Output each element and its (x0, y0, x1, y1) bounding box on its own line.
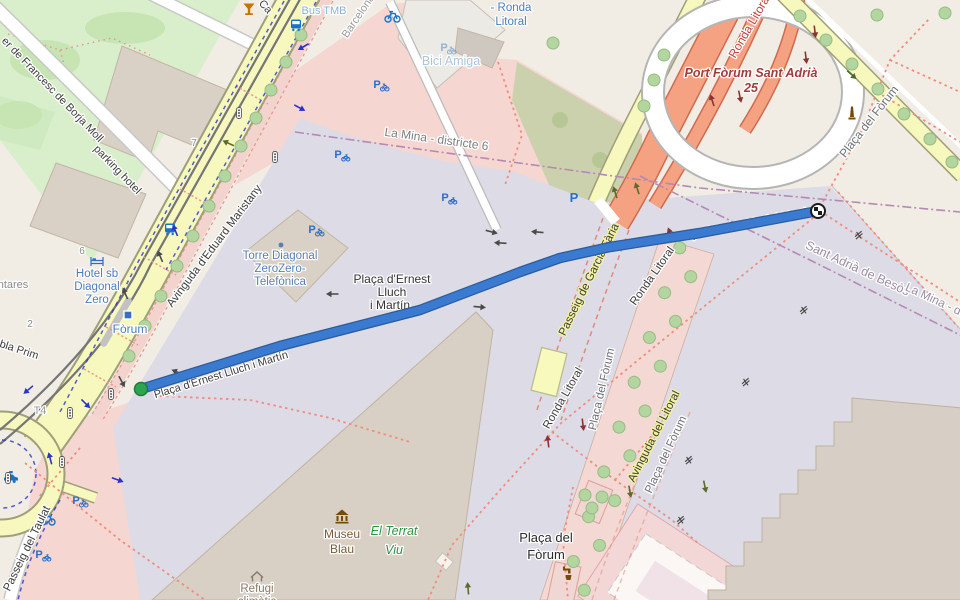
tree-icon (598, 466, 610, 478)
poi-torre-1: Torre Diagonal (243, 250, 318, 262)
tree-icon (638, 100, 650, 112)
tree-icon (295, 29, 307, 41)
station-forum: Fòrum (113, 322, 148, 336)
tree-icon (924, 133, 936, 145)
route-start-marker[interactable] (135, 383, 148, 396)
tree-icon (820, 34, 832, 46)
tree-icon (939, 7, 951, 19)
traffic-light-icon (109, 389, 114, 400)
area-placa-forum-1: Plaça del (519, 530, 573, 545)
poi-hotel-2: Diagonal (74, 281, 119, 293)
tree-icon (579, 489, 591, 501)
traffic-light-icon (60, 457, 65, 468)
junction-port-forum: Port Fòrum Sant Adrià (685, 66, 818, 80)
traffic-light-icon (68, 408, 73, 419)
area-placa-forum-2: Fòrum (527, 547, 565, 562)
area-placa-ernest-1: Plaça d'Ernest (354, 272, 432, 286)
stop-ronda-litoral-2: Litoral (495, 16, 526, 28)
tree-icon (794, 10, 806, 22)
poi-terrat-2: Viu (385, 543, 403, 557)
tree-icon (613, 421, 625, 433)
tree-icon (871, 9, 883, 21)
tree-icon (659, 287, 671, 299)
tree-icon (171, 260, 183, 272)
tree-icon (594, 539, 606, 551)
tree-icon (670, 315, 682, 327)
tree-icon (946, 156, 958, 168)
area-placa-ernest-2: Lluch (378, 285, 407, 299)
poi-museu-1: Museu (324, 527, 360, 541)
tree-icon (648, 74, 660, 86)
tree-icon (203, 200, 215, 212)
tree-icon (586, 502, 598, 514)
poi-torre-2: ZeroZero- (254, 263, 305, 275)
poi-refugi-2: climàtic (238, 596, 277, 600)
tree-icon (596, 491, 608, 503)
street-ntares: ntares (0, 279, 29, 291)
tree-icon (187, 230, 199, 242)
tree-icon (846, 58, 858, 70)
junction-exit-25: 25 (743, 81, 759, 95)
station-icon (124, 311, 132, 319)
tree-icon (547, 37, 559, 49)
poi-museu-2: Blau (330, 542, 354, 556)
traffic-light-icon (237, 108, 242, 119)
tree-icon (658, 49, 670, 61)
poi-terrat-1: El Terrat (371, 524, 418, 538)
tree-icon (265, 84, 277, 96)
housenumber-7: 7 (191, 138, 197, 149)
stop-ronda-litoral-1: - Ronda (491, 2, 533, 14)
tree-icon (578, 584, 590, 596)
poi-hotel-3: Zero (85, 294, 109, 306)
tree-icon (219, 170, 231, 182)
tree-icon (609, 495, 621, 507)
tree-icon (624, 450, 636, 462)
poi-torre-3: Telefònica (254, 276, 306, 288)
poi-refugi-1: Refugi (240, 583, 273, 595)
tree-icon (639, 405, 651, 417)
poi-bici-amiga: Bici Amiga (422, 54, 480, 68)
stop-bus-tmb: Bus TMB (301, 5, 346, 17)
tree-icon (235, 140, 247, 152)
tree-icon (567, 556, 579, 568)
tree-icon (685, 271, 697, 283)
route-end-marker[interactable] (811, 204, 825, 218)
tree-icon (628, 376, 640, 388)
tree-icon (123, 350, 135, 362)
parking-icon (570, 190, 579, 205)
tree-icon (654, 360, 666, 372)
map-canvas[interactable]: P P P (0, 0, 960, 600)
tree-icon (643, 332, 655, 344)
poi-dot-icon (279, 243, 284, 248)
tree-icon (250, 112, 262, 124)
traffic-light-icon (6, 473, 11, 484)
housenumber-6: 6 (79, 246, 85, 257)
poi-hotel-1: Hotel sb (76, 268, 118, 280)
tree-icon (898, 108, 910, 120)
housenumber-2: 2 (27, 319, 33, 330)
tree-icon (280, 56, 292, 68)
stop-t4: T4 (34, 405, 47, 417)
traffic-light-icon (273, 152, 278, 163)
